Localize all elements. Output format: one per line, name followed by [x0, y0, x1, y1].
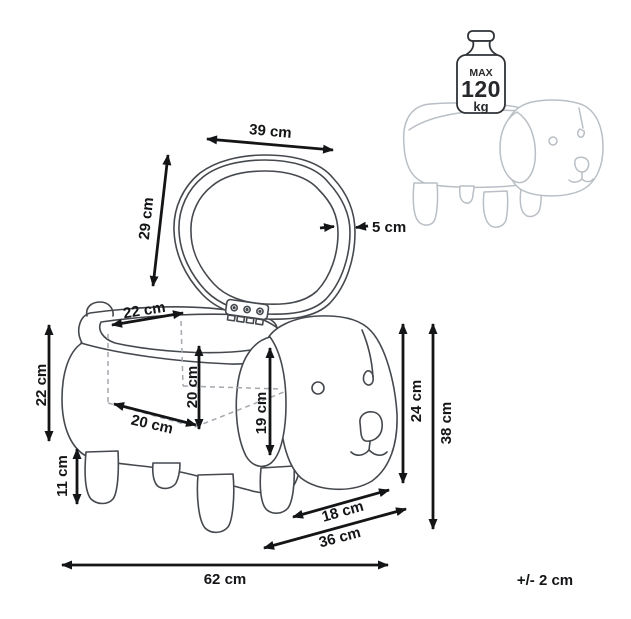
- dim-label-inner-height: 20 cm: [184, 366, 201, 409]
- dim-label-total-depth: 36 cm: [317, 524, 362, 551]
- dog-philtrum: [369, 442, 370, 450]
- dimension-leg-height: 11 cm: [54, 449, 77, 504]
- dim-label-total-width: 62 cm: [204, 571, 247, 588]
- dimension-seat-height: 24 cm: [403, 324, 425, 483]
- dim-label-lid-width: 39 cm: [248, 121, 292, 142]
- dimension-lid-height: 29 cm: [136, 155, 168, 286]
- dim-label-ear-height: 19 cm: [253, 392, 270, 435]
- dimension-total-height: 38 cm: [433, 324, 455, 529]
- dim-label-body-height: 22 cm: [33, 364, 50, 407]
- dimension-lid-width: 39 cm: [207, 121, 333, 150]
- dim-label-seat-height: 24 cm: [408, 380, 425, 423]
- ottoman-dimension-diagram: 39 cm 29 cm 5 cm 22 cm 20 cm 20 cm 22 cm…: [0, 0, 631, 619]
- mini-leg: [460, 186, 474, 203]
- leg: [85, 451, 118, 504]
- lid-open: [174, 155, 355, 319]
- dim-label-lid-height: 29 cm: [136, 196, 157, 240]
- diagram-canvas: 39 cm 29 cm 5 cm 22 cm 20 cm 20 cm 22 cm…: [0, 0, 631, 619]
- dim-label-leg-height: 11 cm: [54, 455, 71, 497]
- leg: [153, 463, 180, 488]
- mini-leg: [413, 183, 437, 225]
- dim-label-lid-thickness: 5 cm: [372, 219, 406, 236]
- mini-ottoman-drawing: [404, 100, 603, 227]
- main-ottoman-drawing: [62, 155, 397, 532]
- max-load-unit: kg: [473, 99, 488, 114]
- dim-label-total-height: 38 cm: [438, 402, 455, 445]
- leg: [260, 466, 294, 513]
- dimension-total-width: 62 cm: [62, 565, 388, 588]
- dimension-body-height: 22 cm: [33, 325, 50, 441]
- dimension-head-depth: 18 cm: [293, 490, 389, 526]
- leg: [197, 474, 233, 532]
- tolerance-note: +/- 2 cm: [517, 572, 573, 589]
- mini-leg: [483, 191, 507, 227]
